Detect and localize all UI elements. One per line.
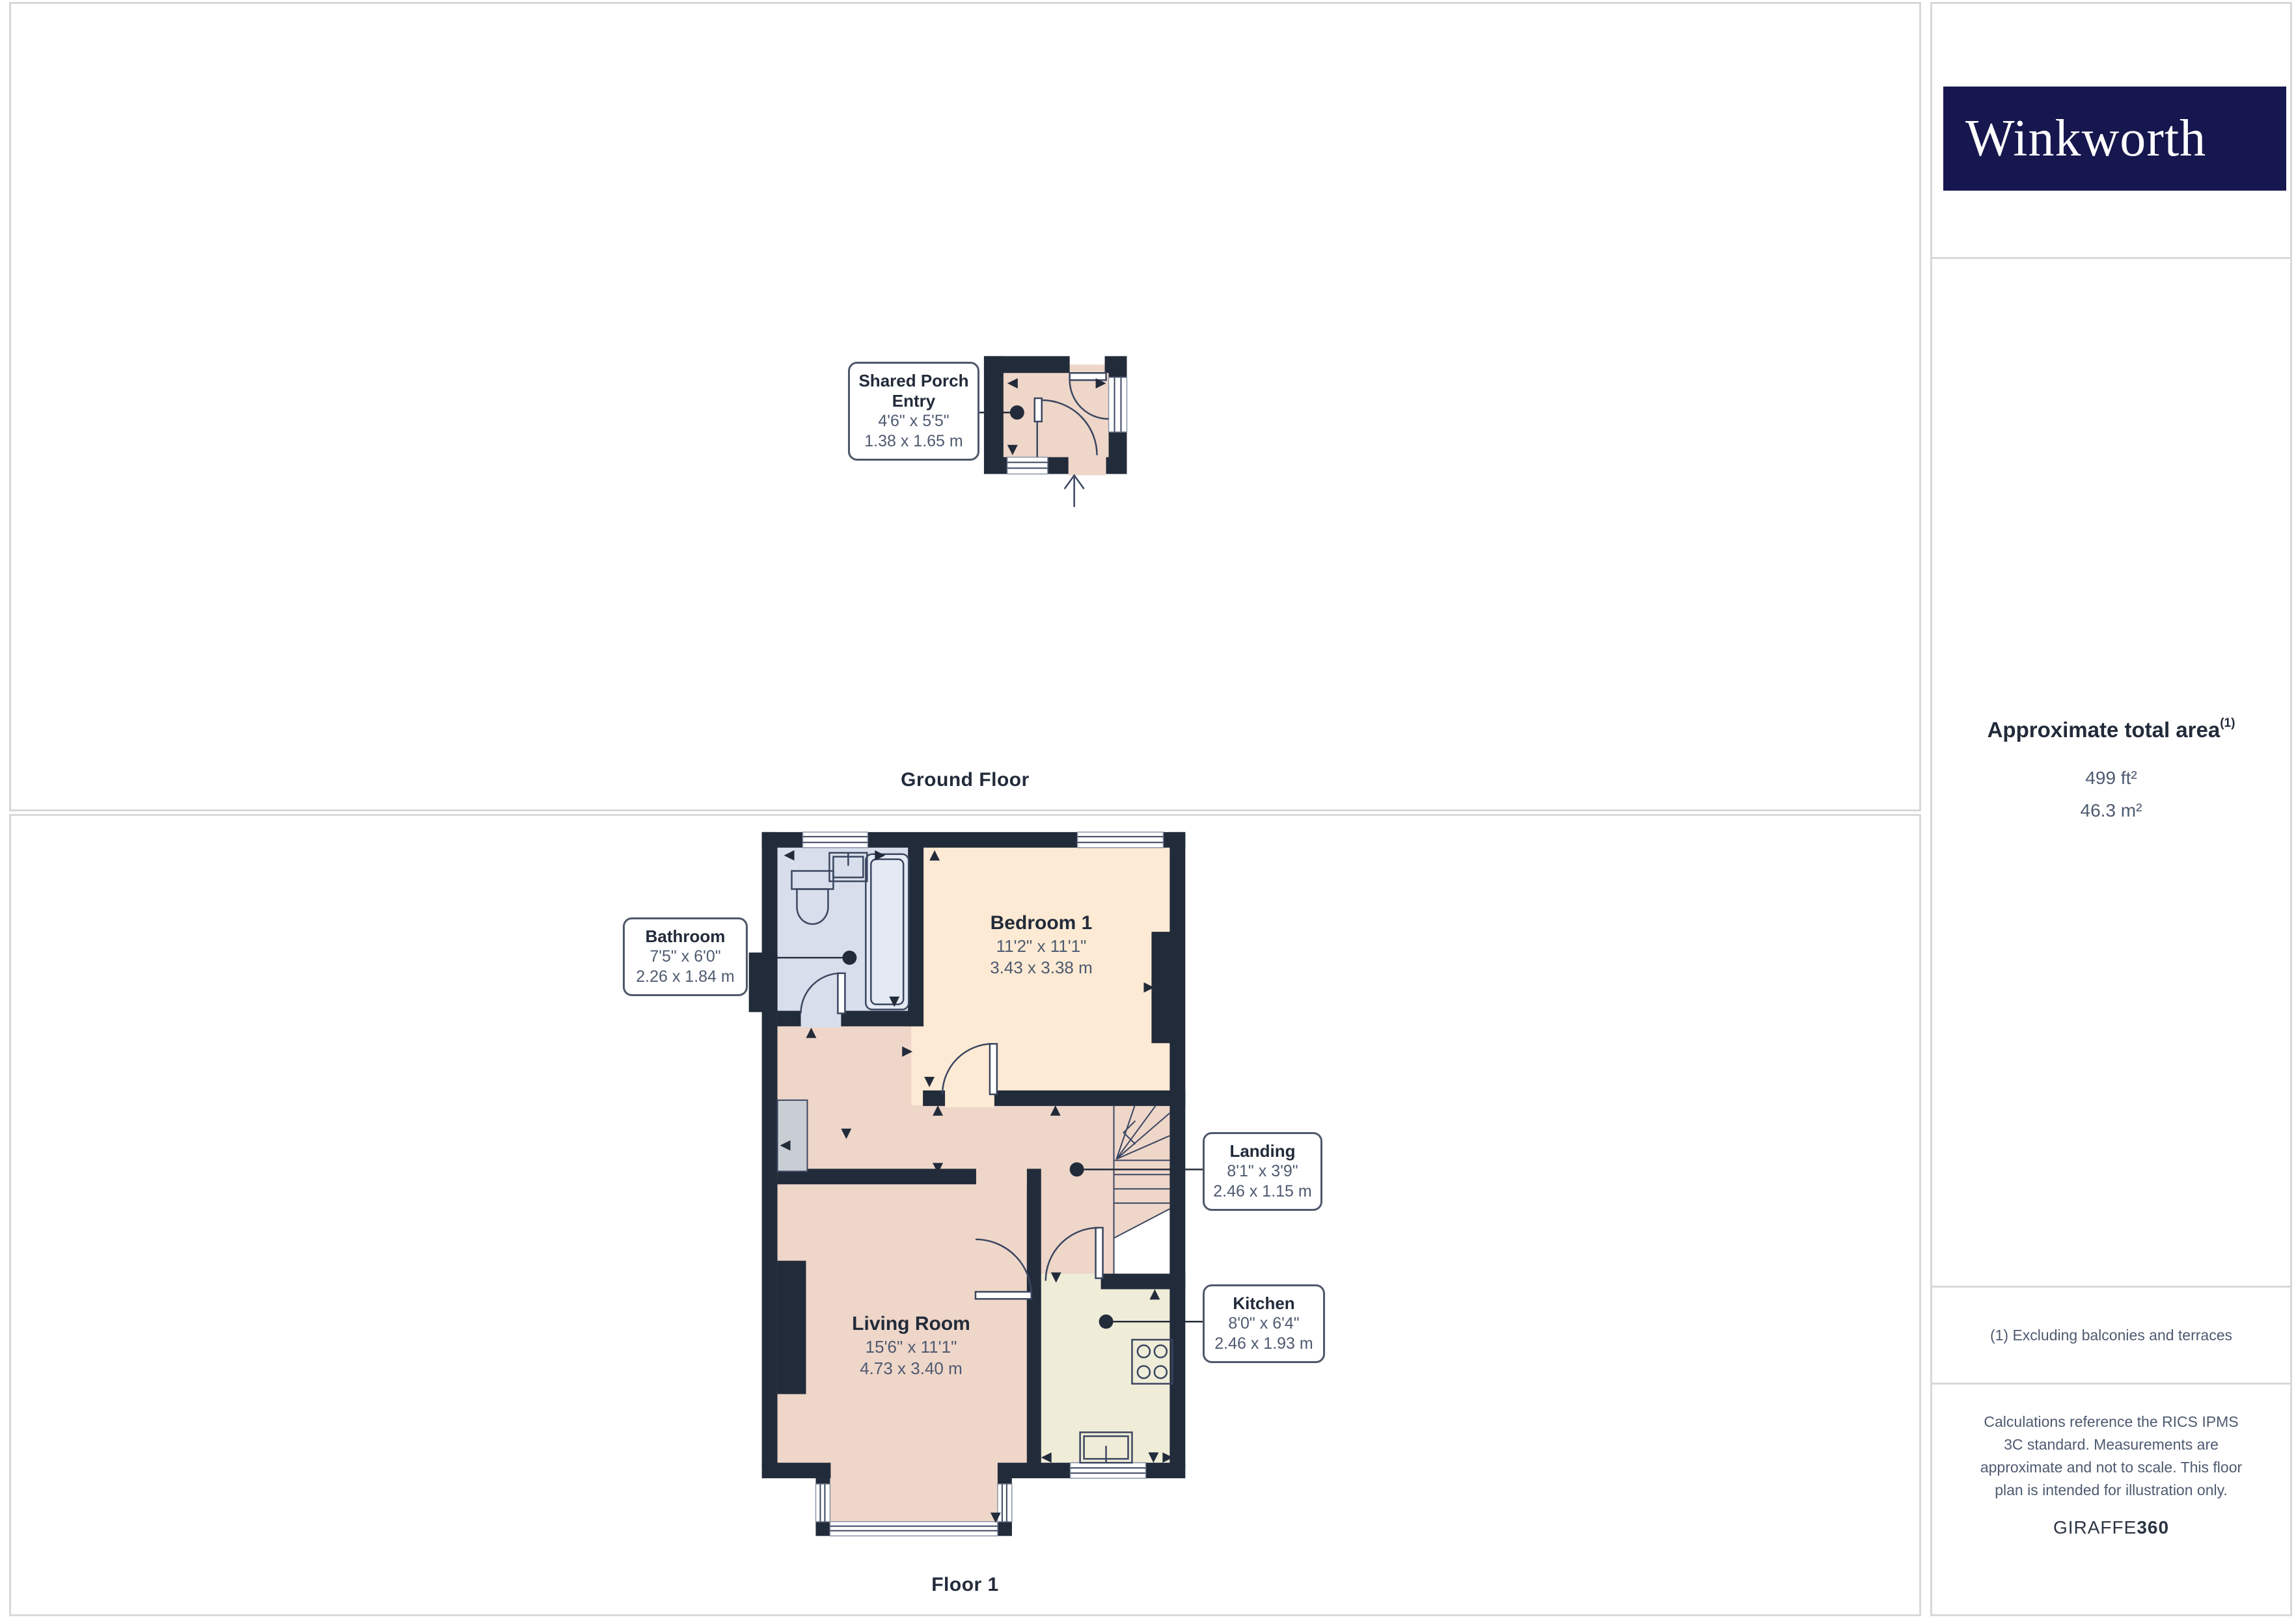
kitchen-name: Kitchen [1209, 1293, 1319, 1314]
landing-name: Landing [1209, 1141, 1317, 1161]
bathroom-anchor-dot [842, 951, 856, 965]
disclaimer-section: Calculations reference the RICS IPMS 3C … [1932, 1385, 2290, 1614]
bathroom-label: Bathroom 7'5" x 6'0" 2.26 x 1.84 m [623, 917, 748, 996]
bathtub [866, 854, 909, 1010]
living-room-label: Living Room 15'6" x 11'1" 4.73 x 3.40 m [810, 1312, 1012, 1379]
logo-text: Winkworth [1965, 109, 2206, 169]
floorplan-page: { "brand": { "name": "Winkworth" }, "pan… [0, 0, 2296, 1624]
porch-plan [979, 356, 1127, 507]
credit-brand: GIRAFFE [2053, 1517, 2137, 1537]
kitchen-metric: 2.46 x 1.93 m [1209, 1334, 1319, 1354]
bathroom-imperial: 7'5" x 6'0" [629, 947, 742, 967]
landing-label: Landing 8'1" x 3'9" 2.46 x 1.15 m [1203, 1132, 1322, 1211]
floor1-title: Floor 1 [11, 1574, 1919, 1596]
disclaimer-text: Calculations reference the RICS IPMS 3C … [1973, 1411, 2249, 1502]
total-area-imperial: 499 ft² [2085, 762, 2137, 794]
bedroom-name: Bedroom 1 [940, 911, 1142, 936]
credit-suffix: 360 [2137, 1517, 2169, 1537]
porch-label: Shared Porch Entry 4'6" x 5'5" 1.38 x 1.… [848, 362, 979, 461]
porch-name: Shared Porch Entry [854, 371, 974, 411]
landing-imperial: 8'1" x 3'9" [1209, 1161, 1317, 1182]
winkworth-logo: Winkworth [1943, 87, 2286, 191]
bedroom-room-label: Bedroom 1 11'2" x 11'1" 3.43 x 3.38 m [940, 911, 1142, 979]
entry-arrow-icon [1065, 475, 1084, 507]
landing-anchor-dot [1070, 1162, 1084, 1176]
total-area-title: Approximate total area(1) [1988, 718, 2235, 742]
giraffe360-credit: GIRAFFE360 [1932, 1517, 2290, 1538]
exclusion-footnote: (1) Excluding balconies and terraces [1932, 1288, 2290, 1385]
logo-section: Winkworth [1932, 4, 2290, 259]
living-imperial: 15'6" x 11'1" [810, 1336, 1012, 1358]
kitchen-anchor-dot [1099, 1314, 1114, 1329]
total-area-section: Approximate total area(1) 499 ft² 46.3 m… [1932, 259, 2290, 1288]
bedroom-imperial: 11'2" x 11'1" [940, 936, 1142, 957]
landing-metric: 2.46 x 1.15 m [1209, 1182, 1317, 1202]
total-area-title-text: Approximate total area [1988, 718, 2221, 742]
kitchen-label: Kitchen 8'0" x 6'4" 2.46 x 1.93 m [1203, 1284, 1325, 1363]
living-metric: 4.73 x 3.40 m [810, 1358, 1012, 1379]
bathroom-name: Bathroom [629, 927, 742, 947]
living-name: Living Room [810, 1312, 1012, 1336]
footnote-marker: (1) [2220, 716, 2235, 730]
total-area-metric: 46.3 m² [2081, 794, 2142, 827]
bathroom-metric: 2.26 x 1.84 m [629, 967, 742, 987]
ground-floor-title: Ground Floor [11, 769, 1919, 791]
info-sidebar: Winkworth Approximate total area(1) 499 … [1930, 2, 2292, 1616]
kitchen-imperial: 8'0" x 6'4" [1209, 1314, 1319, 1334]
porch-anchor-dot [1010, 405, 1024, 420]
porch-metric: 1.38 x 1.65 m [854, 431, 974, 452]
bedroom-metric: 3.43 x 3.38 m [940, 957, 1142, 979]
cupboard [778, 1100, 808, 1171]
porch-imperial: 4'6" x 5'5" [854, 411, 974, 431]
